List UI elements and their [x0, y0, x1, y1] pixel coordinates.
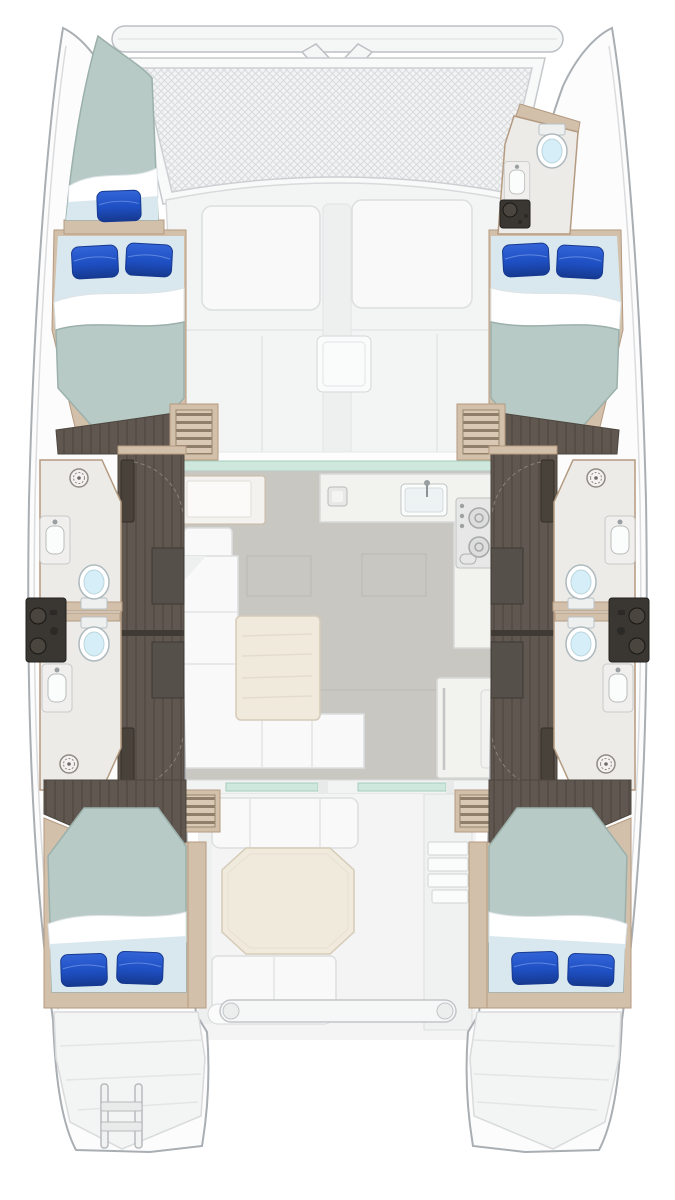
sunpad-port	[202, 206, 320, 310]
equipment-panel	[500, 200, 530, 228]
catamaran-floor-plan	[0, 0, 675, 1200]
windshield-sill	[179, 452, 498, 461]
trampoline-net	[142, 68, 532, 192]
counter-hatch	[328, 487, 347, 506]
sunpad-starboard	[352, 200, 472, 308]
galley-sink	[401, 480, 447, 516]
cockpit-forward-bench	[212, 798, 358, 848]
windshield-glass	[179, 461, 498, 471]
dining-table	[236, 616, 320, 720]
cockpit-table	[222, 848, 354, 954]
center-walkway	[323, 204, 351, 462]
saloon	[181, 471, 500, 794]
deck-hatch	[317, 336, 371, 392]
bow-structure	[112, 26, 563, 204]
dinghy-davit-bar	[220, 1000, 456, 1022]
aft-sliding-door	[181, 780, 499, 794]
